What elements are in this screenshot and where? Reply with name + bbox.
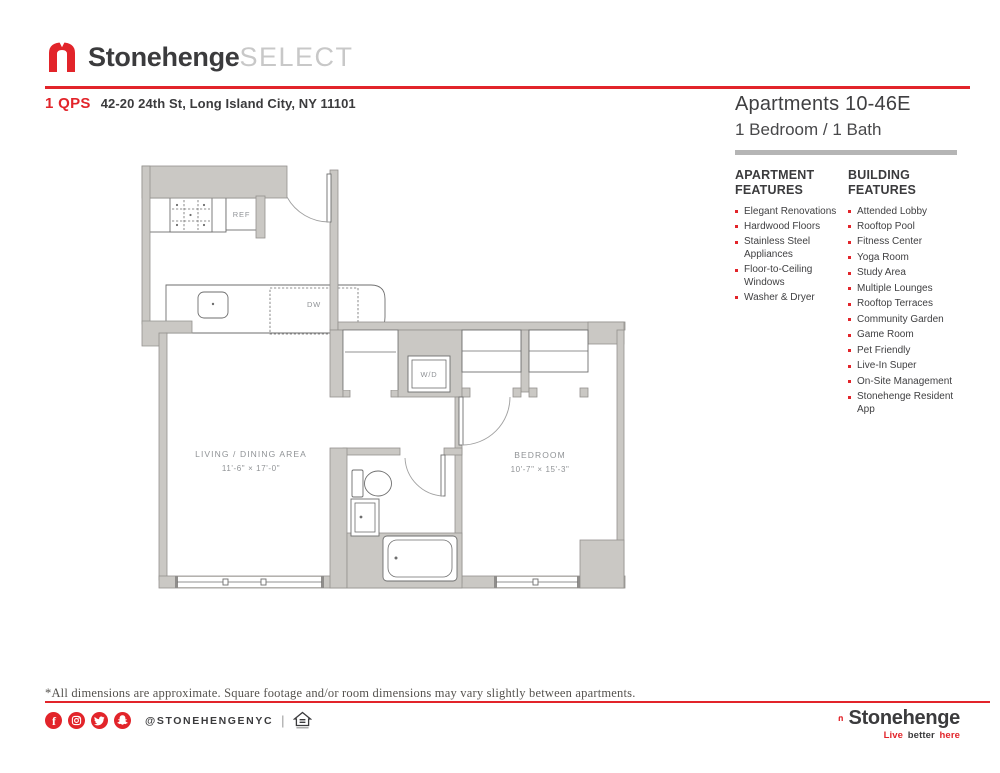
footer-brand-name: Stonehenge — [849, 707, 960, 730]
twitter-icon — [91, 712, 108, 729]
vanity-sink-icon — [351, 499, 379, 536]
tagline-live: Live — [884, 730, 903, 741]
svg-text:f: f — [52, 714, 57, 728]
instagram-icon — [68, 712, 85, 729]
list-item: Floor-to-Ceiling Windows — [735, 264, 839, 289]
building-features: BUILDING FEATURES Attended Lobby Rooftop… — [848, 168, 964, 419]
brand-suffix: SELECT — [240, 42, 354, 73]
svg-text:LIVING / DINING AREA: LIVING / DINING AREA — [195, 449, 307, 459]
toilet-icon — [352, 470, 392, 497]
list-item: Washer & Dryer — [735, 292, 839, 304]
svg-text:10'-7" × 15'-3": 10'-7" × 15'-3" — [511, 465, 570, 474]
social-row: f @STONEHENGENYC | — [45, 711, 312, 730]
list-item: Elegant Renovations — [735, 206, 839, 218]
dw-label: DW — [307, 300, 321, 309]
svg-text:11'-6" × 17'-0": 11'-6" × 17'-0" — [222, 464, 280, 473]
list-item: Community Garden — [848, 314, 964, 326]
unit-subtitle: 1 Bedroom / 1 Bath — [735, 120, 957, 140]
bedroom-door — [459, 397, 510, 445]
bathroom-door — [405, 455, 445, 496]
bathtub-icon — [383, 536, 457, 581]
living-room-label: LIVING / DINING AREA 11'-6" × 17'-0" — [195, 449, 307, 473]
social-handle: @STONEHENGENYC — [145, 715, 273, 727]
facebook-icon: f — [45, 712, 62, 729]
list-item: Hardwood Floors — [735, 221, 839, 233]
washer-dryer: W/D — [408, 356, 450, 392]
stonehenge-arch-icon — [45, 40, 79, 74]
address-row: 1 QPS 42-20 24th St, Long Island City, N… — [45, 95, 356, 112]
wd-label: W/D — [421, 370, 438, 379]
footer-brand: Stonehenge Live better here — [838, 707, 960, 741]
list-item: Live-In Super — [848, 360, 964, 372]
entry-door — [287, 174, 331, 222]
list-item: Game Room — [848, 329, 964, 341]
flyer-page: Stonehenge SELECT 1 QPS 42-20 24th St, L… — [0, 0, 1000, 773]
list-item: Multiple Lounges — [848, 283, 964, 295]
brand-name: Stonehenge — [88, 42, 240, 73]
footer-tagline: Live better here — [838, 730, 960, 741]
list-item: Fitness Center — [848, 236, 964, 248]
living-window — [175, 576, 324, 588]
unit-panel: Apartments 10-46E 1 Bedroom / 1 Bath — [735, 93, 957, 140]
disclaimer-text: *All dimensions are approximate. Square … — [45, 686, 636, 701]
bedroom-label: BEDROOM 10'-7" × 15'-3" — [511, 450, 570, 474]
list-item: Yoga Room — [848, 252, 964, 264]
apartment-features-list: Elegant Renovations Hardwood Floors Stai… — [735, 206, 839, 305]
building-code: 1 QPS — [45, 95, 91, 112]
footer-divider — [45, 701, 990, 703]
unit-title: Apartments 10-46E — [735, 93, 957, 116]
ref-label: REF — [233, 210, 250, 219]
floor-plan: REF DW — [140, 162, 670, 594]
list-item: Stainless Steel Appliances — [735, 236, 839, 261]
snapchat-icon — [114, 712, 131, 729]
list-item: Rooftop Terraces — [848, 298, 964, 310]
list-item: Rooftop Pool — [848, 221, 964, 233]
footer-separator: | — [281, 713, 284, 728]
kitchen-counters: REF DW — [148, 198, 385, 334]
building-features-list: Attended Lobby Rooftop Pool Fitness Cent… — [848, 206, 964, 416]
apartment-features: APARTMENT FEATURES Elegant Renovations H… — [735, 168, 839, 308]
list-item: Pet Friendly — [848, 345, 964, 357]
tagline-here: here — [940, 730, 960, 741]
brand-logo: Stonehenge SELECT — [45, 40, 354, 74]
apartment-features-heading: APARTMENT FEATURES — [735, 168, 839, 198]
header-divider — [45, 86, 970, 89]
unit-divider — [735, 150, 957, 155]
building-features-heading: BUILDING FEATURES — [848, 168, 964, 198]
bedroom-window — [494, 576, 580, 588]
stonehenge-arch-icon — [838, 708, 844, 729]
svg-text:BEDROOM: BEDROOM — [514, 450, 566, 460]
equal-housing-icon — [293, 711, 312, 730]
list-item: Study Area — [848, 267, 964, 279]
list-item: On-Site Management — [848, 376, 964, 388]
list-item: Stonehenge Resident App — [848, 391, 964, 416]
list-item: Attended Lobby — [848, 206, 964, 218]
building-address: 42-20 24th St, Long Island City, NY 1110… — [101, 96, 356, 111]
entry-closet — [343, 330, 398, 390]
tagline-better: better — [908, 730, 935, 741]
